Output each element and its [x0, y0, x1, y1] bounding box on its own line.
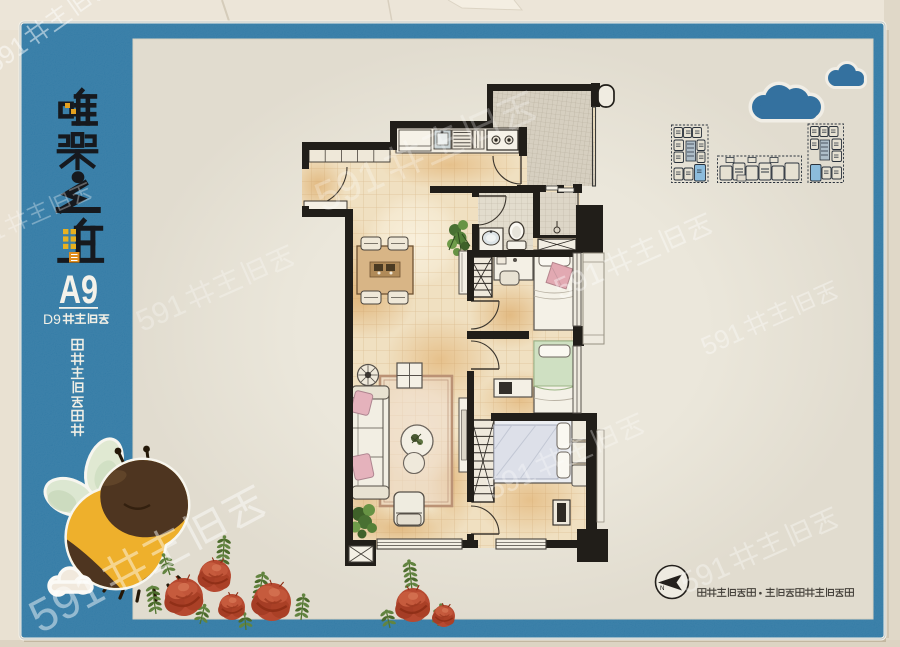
svg-text:D9: D9	[43, 311, 61, 327]
svg-text:A9: A9	[59, 268, 98, 312]
svg-text:N: N	[660, 585, 664, 592]
